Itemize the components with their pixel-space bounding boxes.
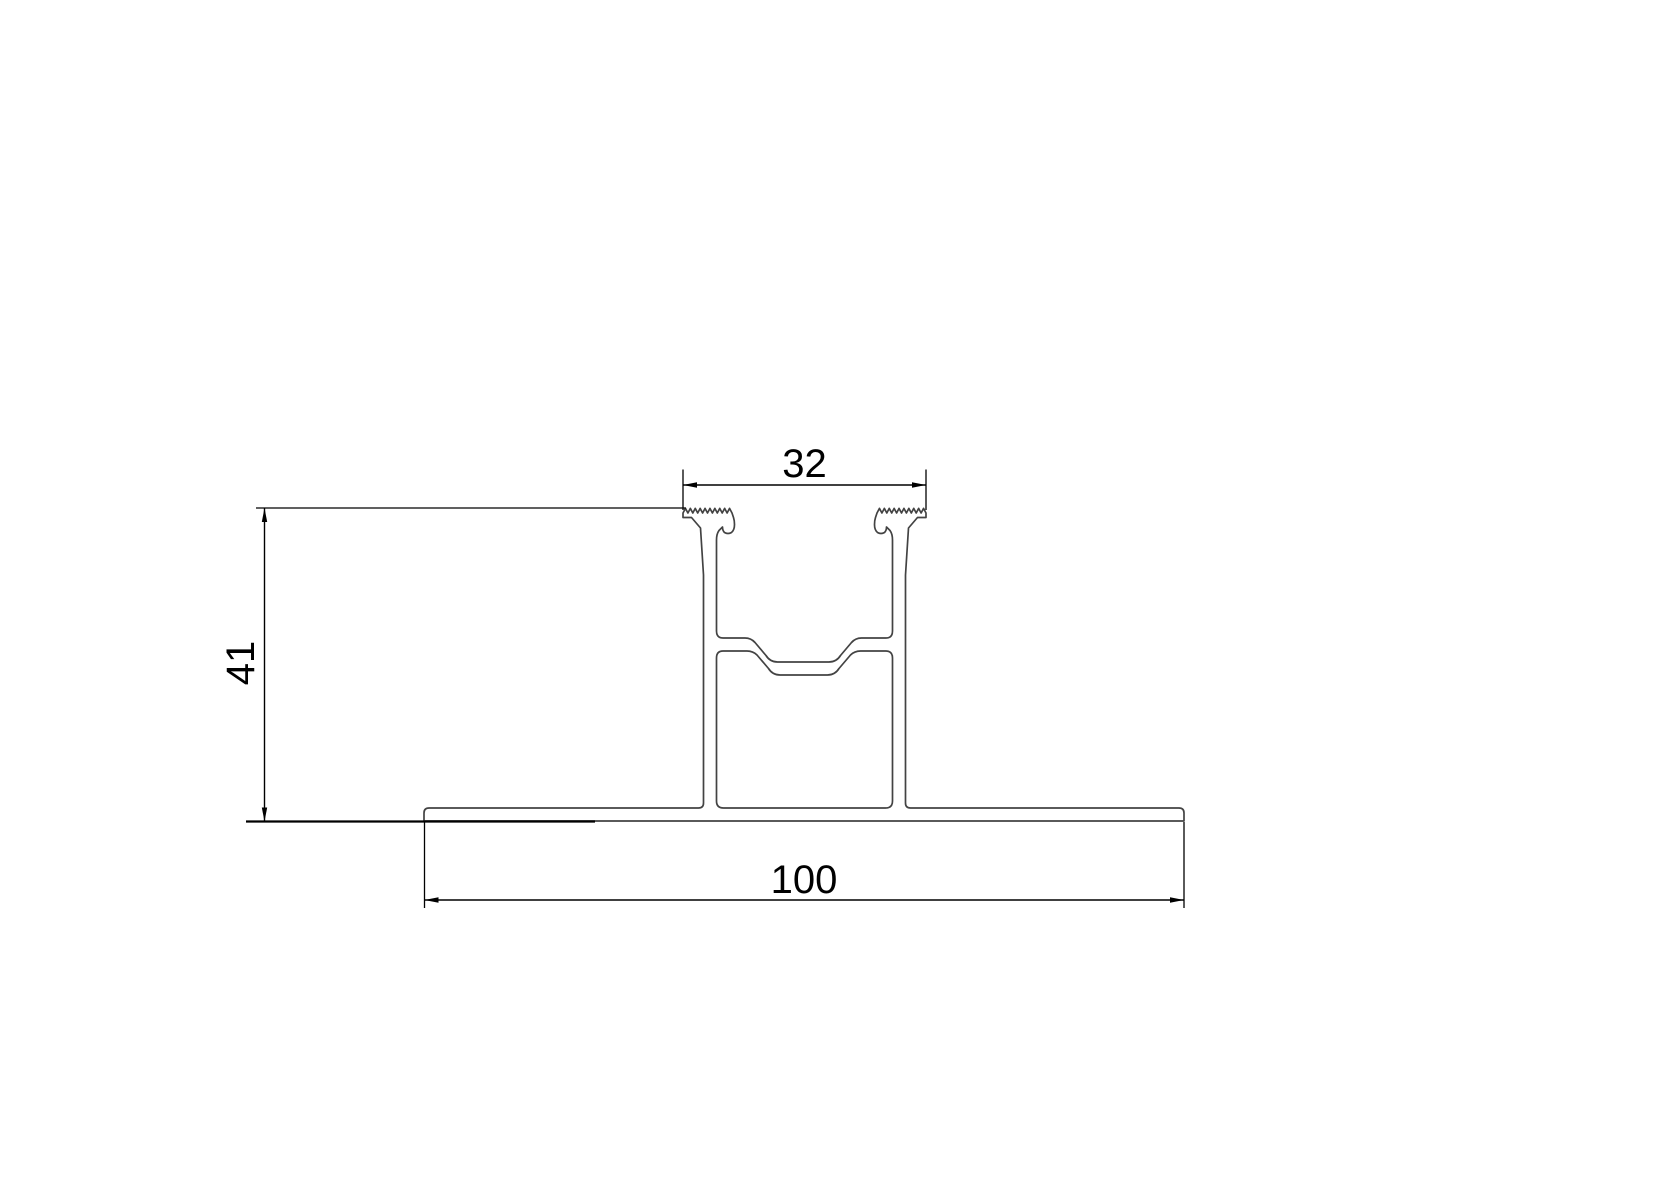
dimension-top-width: 32 <box>683 442 926 510</box>
dimension-top-width-arrow-right <box>912 482 926 487</box>
cad-drawing-svg: 32 41 100 <box>0 0 1680 1188</box>
profile-inner-cavity <box>717 651 893 808</box>
dimension-base-width-arrow-right <box>1170 897 1184 902</box>
dimension-overall-height-arrow-bottom <box>262 808 267 822</box>
dimension-base-width: 100 <box>425 822 1185 908</box>
dimension-base-width-label: 100 <box>771 858 838 902</box>
dimension-overall-height-arrow-top <box>262 508 267 522</box>
dimension-top-width-arrow-left <box>683 482 697 487</box>
dimension-top-width-label: 32 <box>782 442 827 486</box>
dimension-base-width-arrow-left <box>425 897 439 902</box>
profile-outline <box>424 508 1184 821</box>
drawing-canvas: 32 41 100 <box>0 0 1680 1188</box>
profile-outer-contour <box>424 508 1184 821</box>
dimension-overall-height-label: 41 <box>219 641 263 686</box>
dimension-overall-height: 41 <box>219 508 686 822</box>
